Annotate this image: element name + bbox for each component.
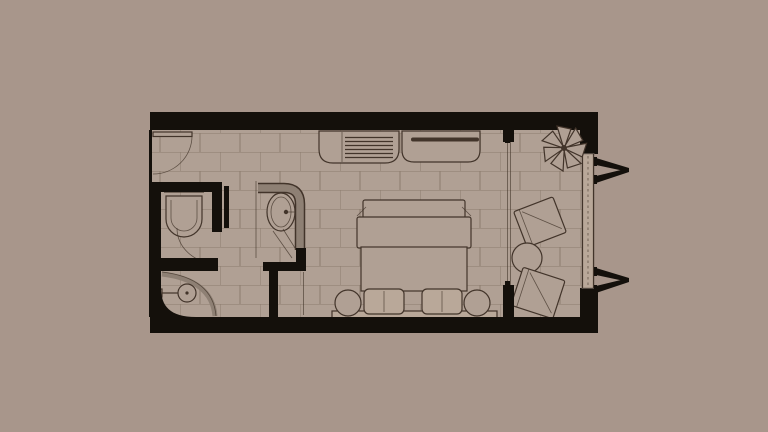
bed-body <box>361 247 467 291</box>
bed-pillow-left <box>364 289 404 314</box>
nightstand-right <box>464 290 490 316</box>
floor-plan <box>0 0 768 432</box>
bed-duvet-band <box>357 217 471 248</box>
nightstand-left <box>335 290 361 316</box>
desk-top-edge <box>411 138 479 142</box>
wall-top <box>150 112 598 130</box>
bed-foot-fold <box>363 200 465 218</box>
bathtub <box>267 193 296 231</box>
bed-pillow-right <box>422 289 462 314</box>
wall-toilet-top <box>149 182 222 192</box>
wall-balcony-stub-bottom <box>503 285 514 317</box>
wall-toilet-bottom <box>149 258 218 271</box>
bath-faucet-icon <box>284 210 288 214</box>
luggage-bench <box>319 131 399 163</box>
floor-plan-canvas <box>0 0 768 432</box>
wall-tub-right <box>296 248 306 271</box>
wall-toilet-right <box>212 182 222 232</box>
balcony-railing <box>582 154 594 288</box>
toilet-door-leaf <box>224 186 229 228</box>
wall-bottom <box>150 317 598 333</box>
wall-left-entry <box>149 130 152 186</box>
desk-console <box>402 131 480 162</box>
wall-bath-partition-v <box>269 262 278 317</box>
toilet <box>164 193 204 238</box>
